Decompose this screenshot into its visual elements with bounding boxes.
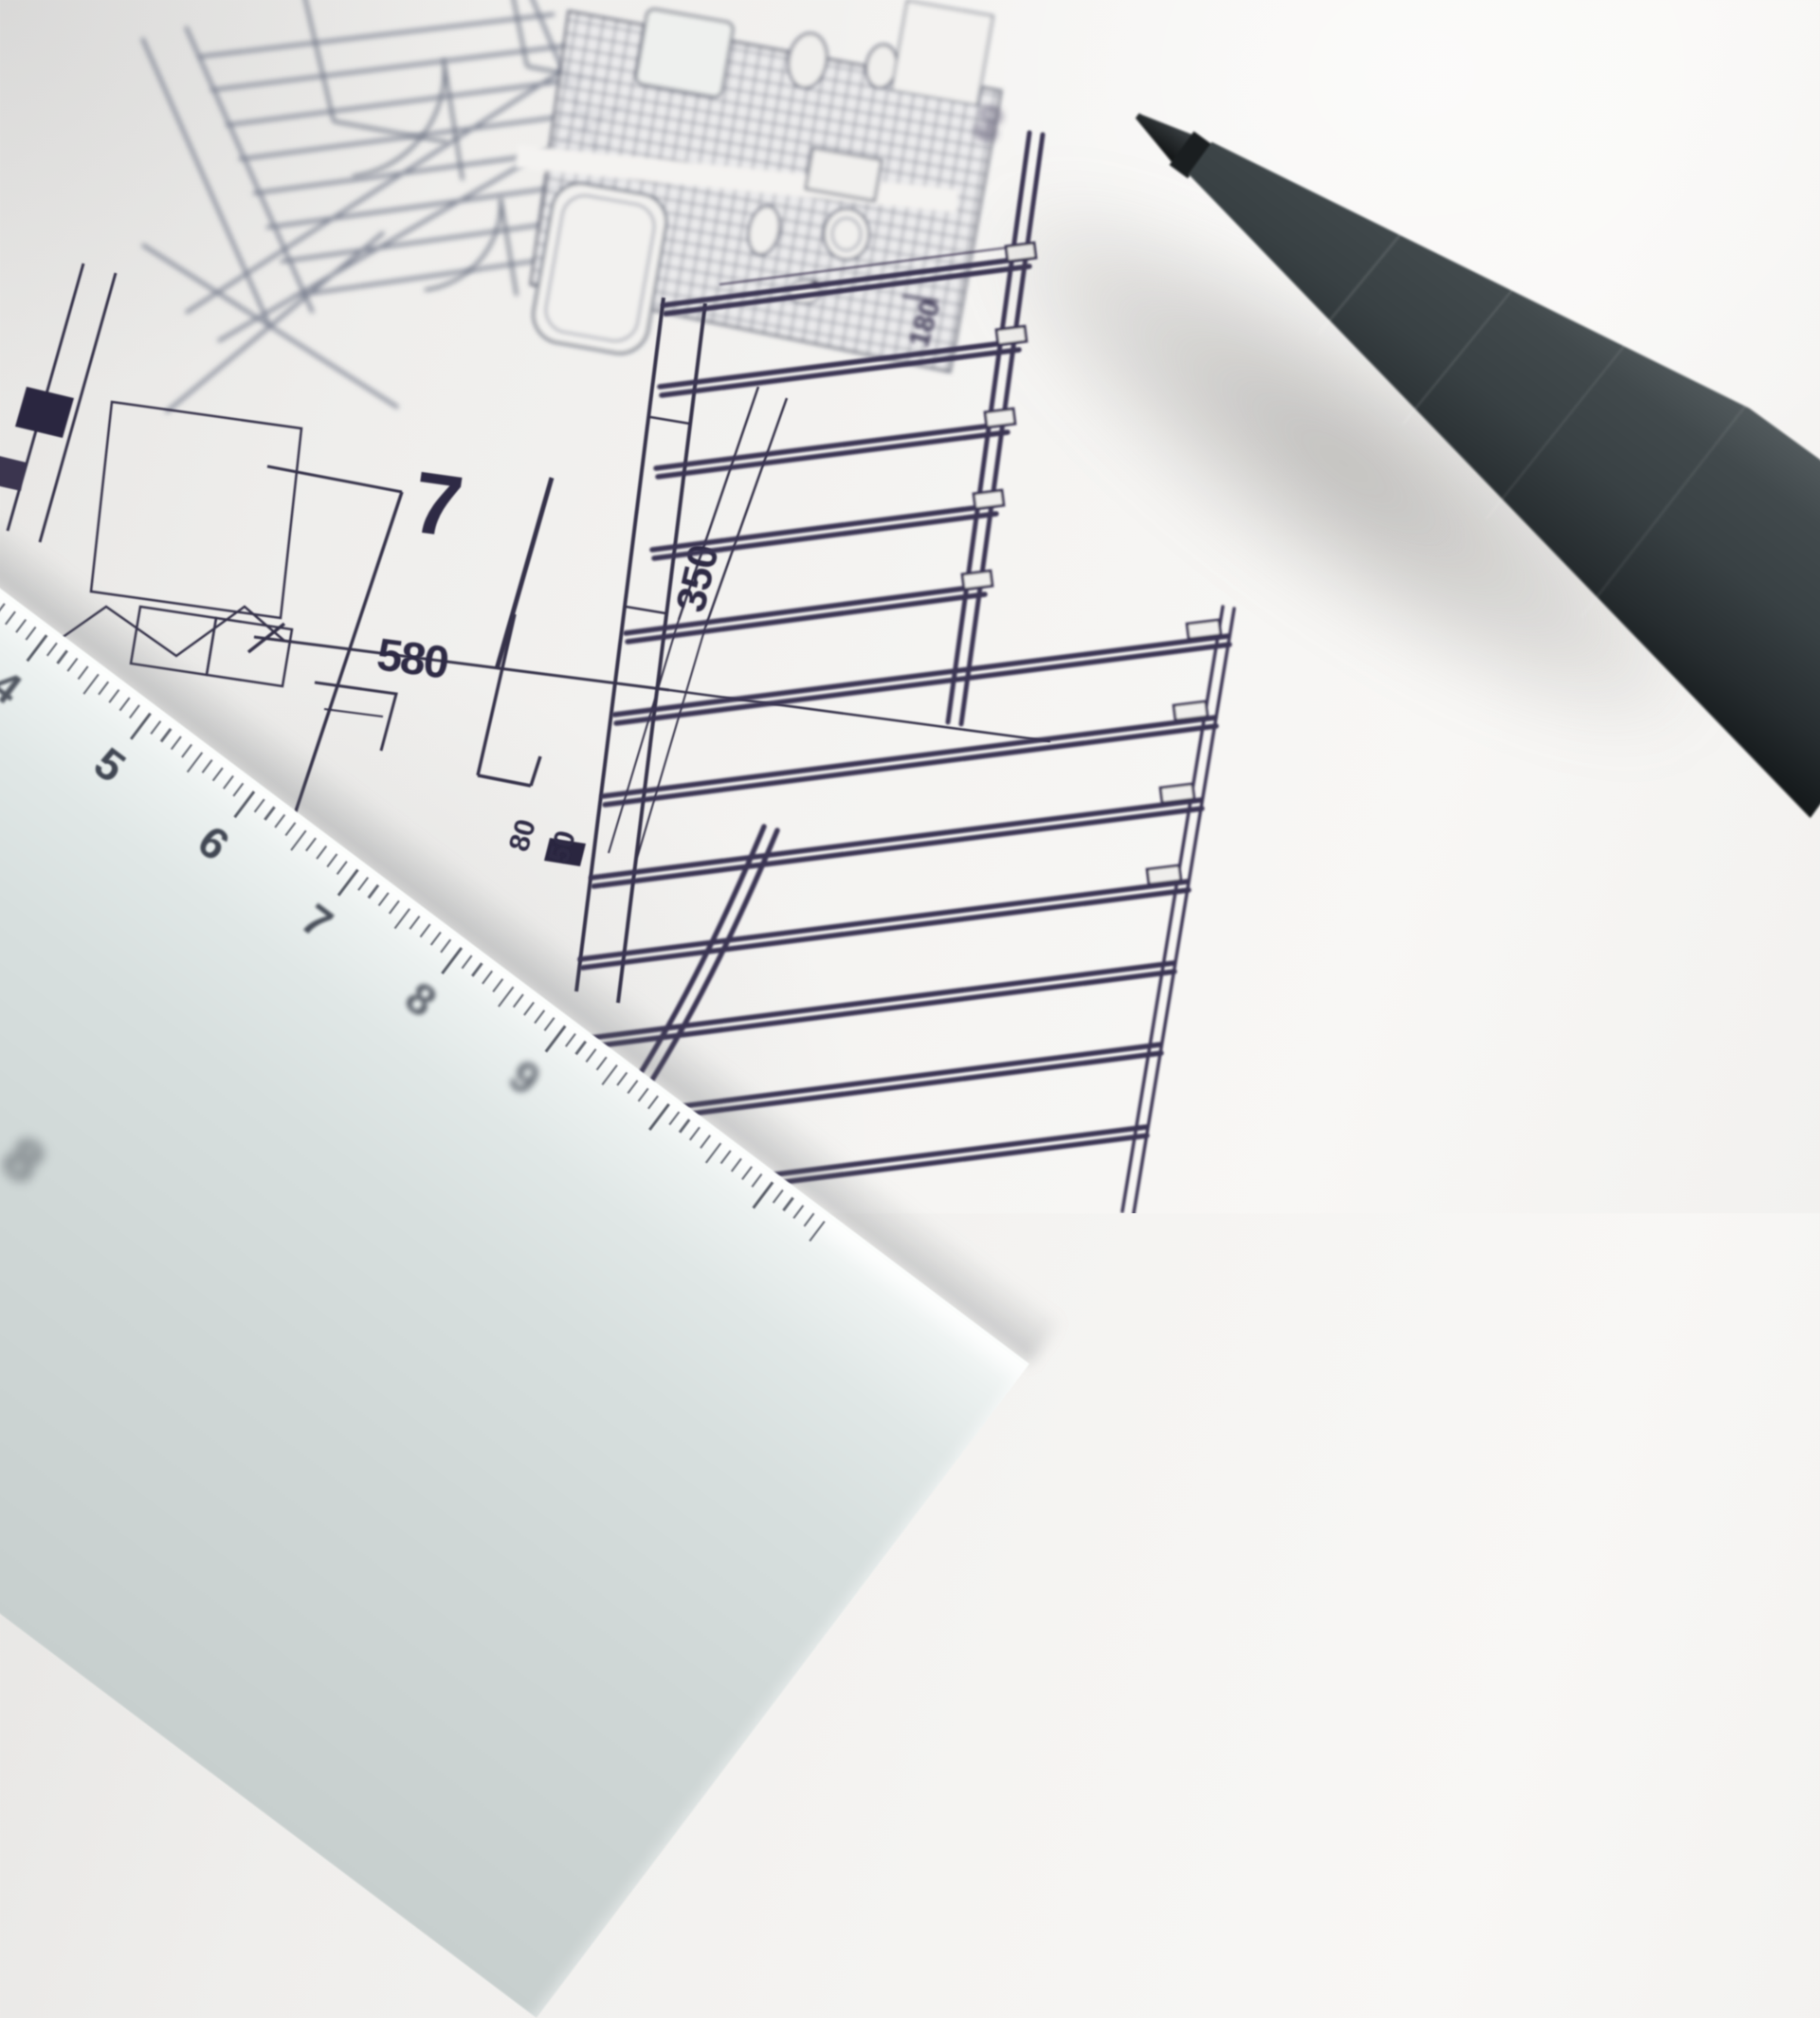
ruler-tick [637,1087,648,1101]
ruler-tick [264,807,275,821]
ruler-tick [513,994,524,1009]
ruler-tick [752,1173,763,1188]
ruler-tick [357,877,369,891]
ruler-tick [181,744,192,758]
ruler-tick [389,900,400,915]
ruler-tick [223,775,234,790]
ruler-tick [741,1166,753,1180]
ruler-tick [534,1009,545,1024]
ruler-tick [337,869,359,897]
ruler-tick [523,1002,535,1016]
ruler-tick [575,1041,587,1055]
ruler-tick [5,611,16,626]
ruler-tick [705,1142,721,1163]
ruler-tick [98,682,109,696]
ruler-tick [616,1072,628,1086]
ruler-tick [171,736,182,750]
ruler-tick [202,759,213,773]
ruler-tick [409,916,421,930]
ruler-tick [420,923,431,937]
ruler-tick [679,1118,690,1133]
ruler-tick [586,1048,597,1063]
ruler-tick [809,1221,825,1242]
ruler-tick [700,1135,711,1149]
ruler-tick [471,963,482,977]
ruler-tick [752,1181,773,1209]
ruler-tick [648,1103,670,1131]
ruler-tick [305,838,317,852]
dimension-text-580: 580 [374,629,451,688]
ruler-tick [596,1056,608,1070]
ruler-tick [46,643,58,657]
ruler-tick [689,1127,701,1141]
ruler-label-6: 6 [189,815,239,871]
ruler-tick [274,814,285,828]
ruler-tick [26,627,37,641]
ruler-tick [186,752,202,773]
ruler-tick [212,767,224,781]
ruler-tick [129,704,140,718]
ruler-tick [545,1026,567,1053]
ruler-tick [378,892,390,906]
dimension-text-80: 80 [503,816,542,855]
ruler-tick [0,603,6,617]
plan-labels: 7 580 350 80 50 [374,454,728,866]
ruler-tick [393,908,409,929]
ruler-tick [482,971,493,985]
ruler-tick [792,1205,804,1219]
ruler-tick [498,986,514,1007]
ruler-tick [290,829,306,850]
ruler-tick [647,1096,659,1110]
ruler-tick [803,1212,814,1227]
ruler-tick [15,619,27,633]
ruler-tick [118,697,130,711]
ruler-tick [668,1111,680,1125]
ruler-tick [326,853,337,867]
washbasin [635,9,734,99]
ruler-tick [492,978,503,992]
ruler-tick [337,861,348,875]
ruler-tick [108,689,119,703]
ruler-tick [27,634,48,662]
ruler-tick [368,884,379,899]
ruler-tick [150,720,161,735]
ruler-label-8: 8 [396,972,446,1027]
ruler-tick [82,673,99,694]
ruler-tick [130,713,152,740]
ruler-tick [284,822,296,836]
joist-beam-outer [1122,607,1234,1213]
ruler-tick [67,658,79,672]
ruler-tick [601,1064,617,1085]
ruler-label-5: 5 [84,737,135,793]
ruler-tick [544,1017,555,1031]
ruler-tick [316,845,327,860]
room-number: 7 [407,454,468,556]
ruler-tick [720,1150,732,1164]
ruler-tick [57,650,68,664]
ruler-tick [430,932,442,946]
ruler-tick [440,939,451,954]
ruler-tick [783,1197,794,1211]
bidet [824,209,869,260]
ruler-tick [441,947,463,974]
ruler-tick [254,798,265,812]
ruler-tick [233,783,245,797]
ruler-tick [78,665,89,680]
ruler-tick [461,954,472,969]
ruler-tick [565,1033,576,1047]
ruler-label-7: 7 [292,893,342,949]
bed-symbol [91,402,301,618]
ruler-tick [233,791,255,818]
ruler-tick [773,1190,784,1204]
ruler-tick [627,1080,638,1094]
ruler-label-9: 9 [500,1049,550,1105]
ruler-tick [160,728,172,742]
cabinet [891,1,992,106]
ruler-tick [731,1158,742,1173]
ruler-corner-label: 8 [0,1124,57,1197]
